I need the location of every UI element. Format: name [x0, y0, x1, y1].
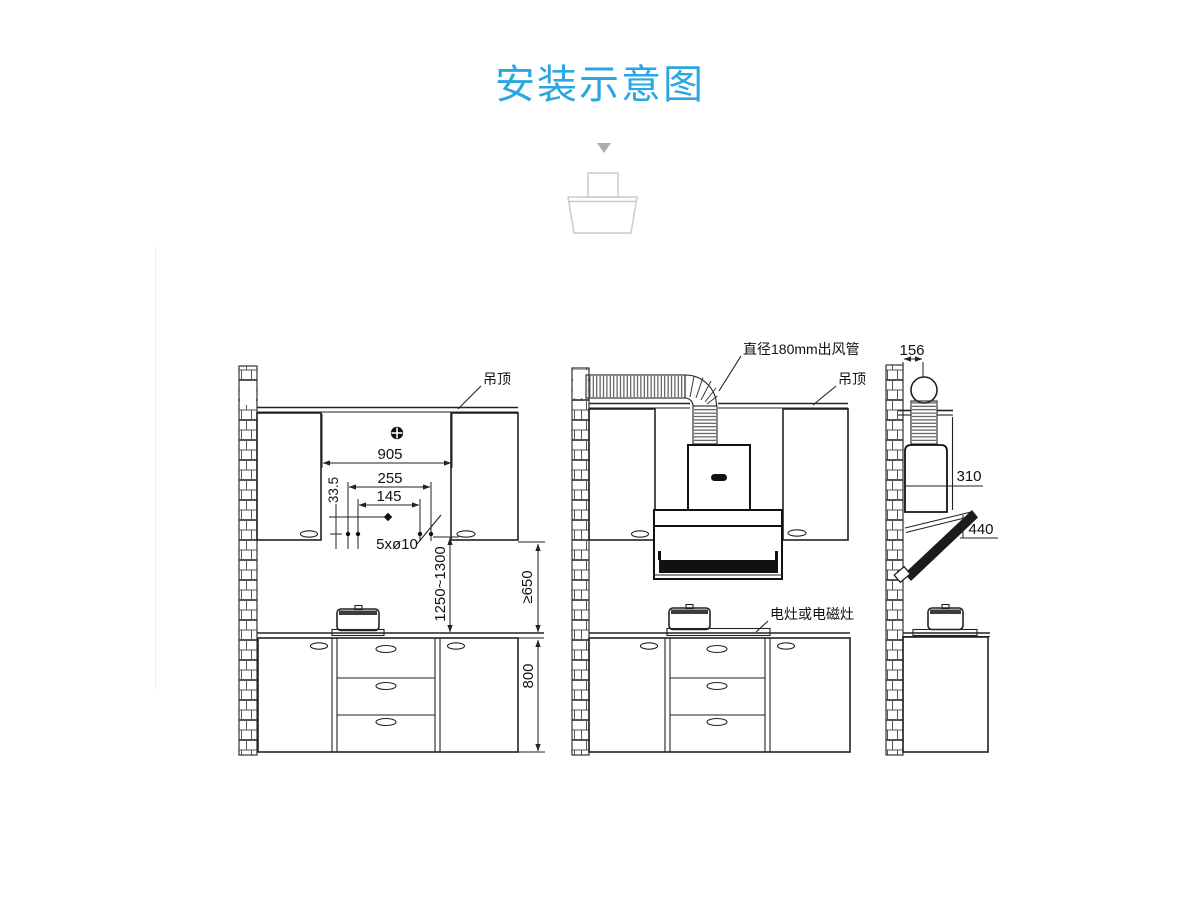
cabinet-handle — [632, 531, 649, 537]
dim-panel-height: 440 — [968, 521, 993, 538]
svg-text:255: 255 — [377, 470, 402, 487]
svg-text:≥650: ≥650 — [519, 570, 536, 603]
svg-text:1250~1300: 1250~1300 — [432, 546, 449, 622]
side-view-diagram: 156 310 — [886, 342, 998, 755]
cooker-label: 电灶或电磁灶 — [770, 606, 854, 622]
intro-glyphs — [568, 143, 637, 233]
drawer-handle — [376, 683, 396, 690]
ceiling-line — [589, 404, 848, 409]
wall-cabinet-left — [589, 409, 655, 540]
brick-wall — [239, 366, 257, 755]
cooktop — [667, 605, 770, 636]
wall-cabinet-right — [783, 409, 848, 540]
installation-diagram-page: 安装示意图 — [0, 0, 1200, 906]
hood-slanted-panel — [905, 510, 979, 581]
cabinet-handle — [788, 530, 806, 536]
drawer-handle — [376, 719, 396, 726]
wall-cabinet-left — [257, 413, 321, 540]
dim-clearance: ≥650 — [518, 542, 545, 632]
front-view-holes-diagram: 吊顶 905 — [239, 366, 545, 755]
holes-label: 5xø10 — [376, 536, 418, 553]
ceiling-leader — [813, 386, 836, 405]
svg-text:905: 905 — [377, 446, 402, 463]
door-handle — [778, 643, 795, 649]
brick-wall — [572, 368, 589, 755]
ceiling-leader — [458, 386, 481, 409]
drawer-handle — [707, 683, 727, 690]
cabinet-handle — [301, 531, 318, 537]
dim-duct-offset: 156 — [899, 342, 924, 377]
door-handle — [448, 643, 465, 649]
mounting-holes — [329, 513, 433, 536]
range-hood-icon — [568, 173, 637, 233]
dim-hole-offset: 33.5 — [326, 477, 342, 549]
down-arrow-icon — [597, 143, 611, 153]
hood-vent — [711, 474, 727, 481]
hood-side-profile: 310 440 — [894, 445, 998, 582]
cooktop — [332, 606, 384, 636]
cooktop — [913, 605, 977, 636]
svg-text:33.5: 33.5 — [326, 477, 341, 503]
front-view-hood-installed-diagram: 直径180mm出风管 吊顶 电灶或电磁灶 — [572, 341, 866, 755]
ceiling-label: 吊顶 — [838, 371, 866, 387]
base-cabinet-side — [903, 637, 988, 752]
drawer-handle — [376, 646, 396, 653]
svg-text:145: 145 — [376, 488, 401, 505]
ceiling-line — [257, 408, 518, 413]
drawer-handle — [707, 719, 727, 726]
door-handle — [641, 643, 658, 649]
diagram-canvas: 吊顶 905 — [0, 0, 1200, 906]
duct-label: 直径180mm出风管 — [743, 341, 860, 357]
range-hood — [654, 445, 782, 579]
ceiling-label: 吊顶 — [483, 371, 511, 387]
duct-leader — [719, 356, 741, 391]
holes-leader — [417, 515, 441, 544]
dim-mount-height: 1250~1300 — [432, 537, 459, 632]
hood-glass-strip — [659, 560, 778, 573]
base-cabinet — [589, 638, 850, 752]
drawer-handle — [707, 646, 727, 653]
svg-text:156: 156 — [899, 342, 924, 359]
screw-head-icon — [391, 427, 403, 439]
cabinet-handle — [457, 531, 475, 537]
door-handle — [311, 643, 328, 649]
base-cabinet — [258, 638, 518, 752]
flex-duct-side — [911, 377, 937, 444]
hood-chimney-side — [905, 445, 947, 512]
dim-cavity-width: 905 — [322, 414, 452, 468]
dim-top-depth: 310 — [956, 468, 981, 485]
dim-base-height: 800 — [518, 640, 545, 752]
wall-cabinet-right — [451, 413, 518, 540]
hood-top-band — [654, 510, 782, 526]
brick-wall — [886, 365, 903, 755]
duct-elbow — [685, 375, 717, 406]
wall-gap — [240, 381, 256, 405]
cooker-leader — [756, 621, 768, 632]
svg-text:800: 800 — [520, 663, 537, 688]
